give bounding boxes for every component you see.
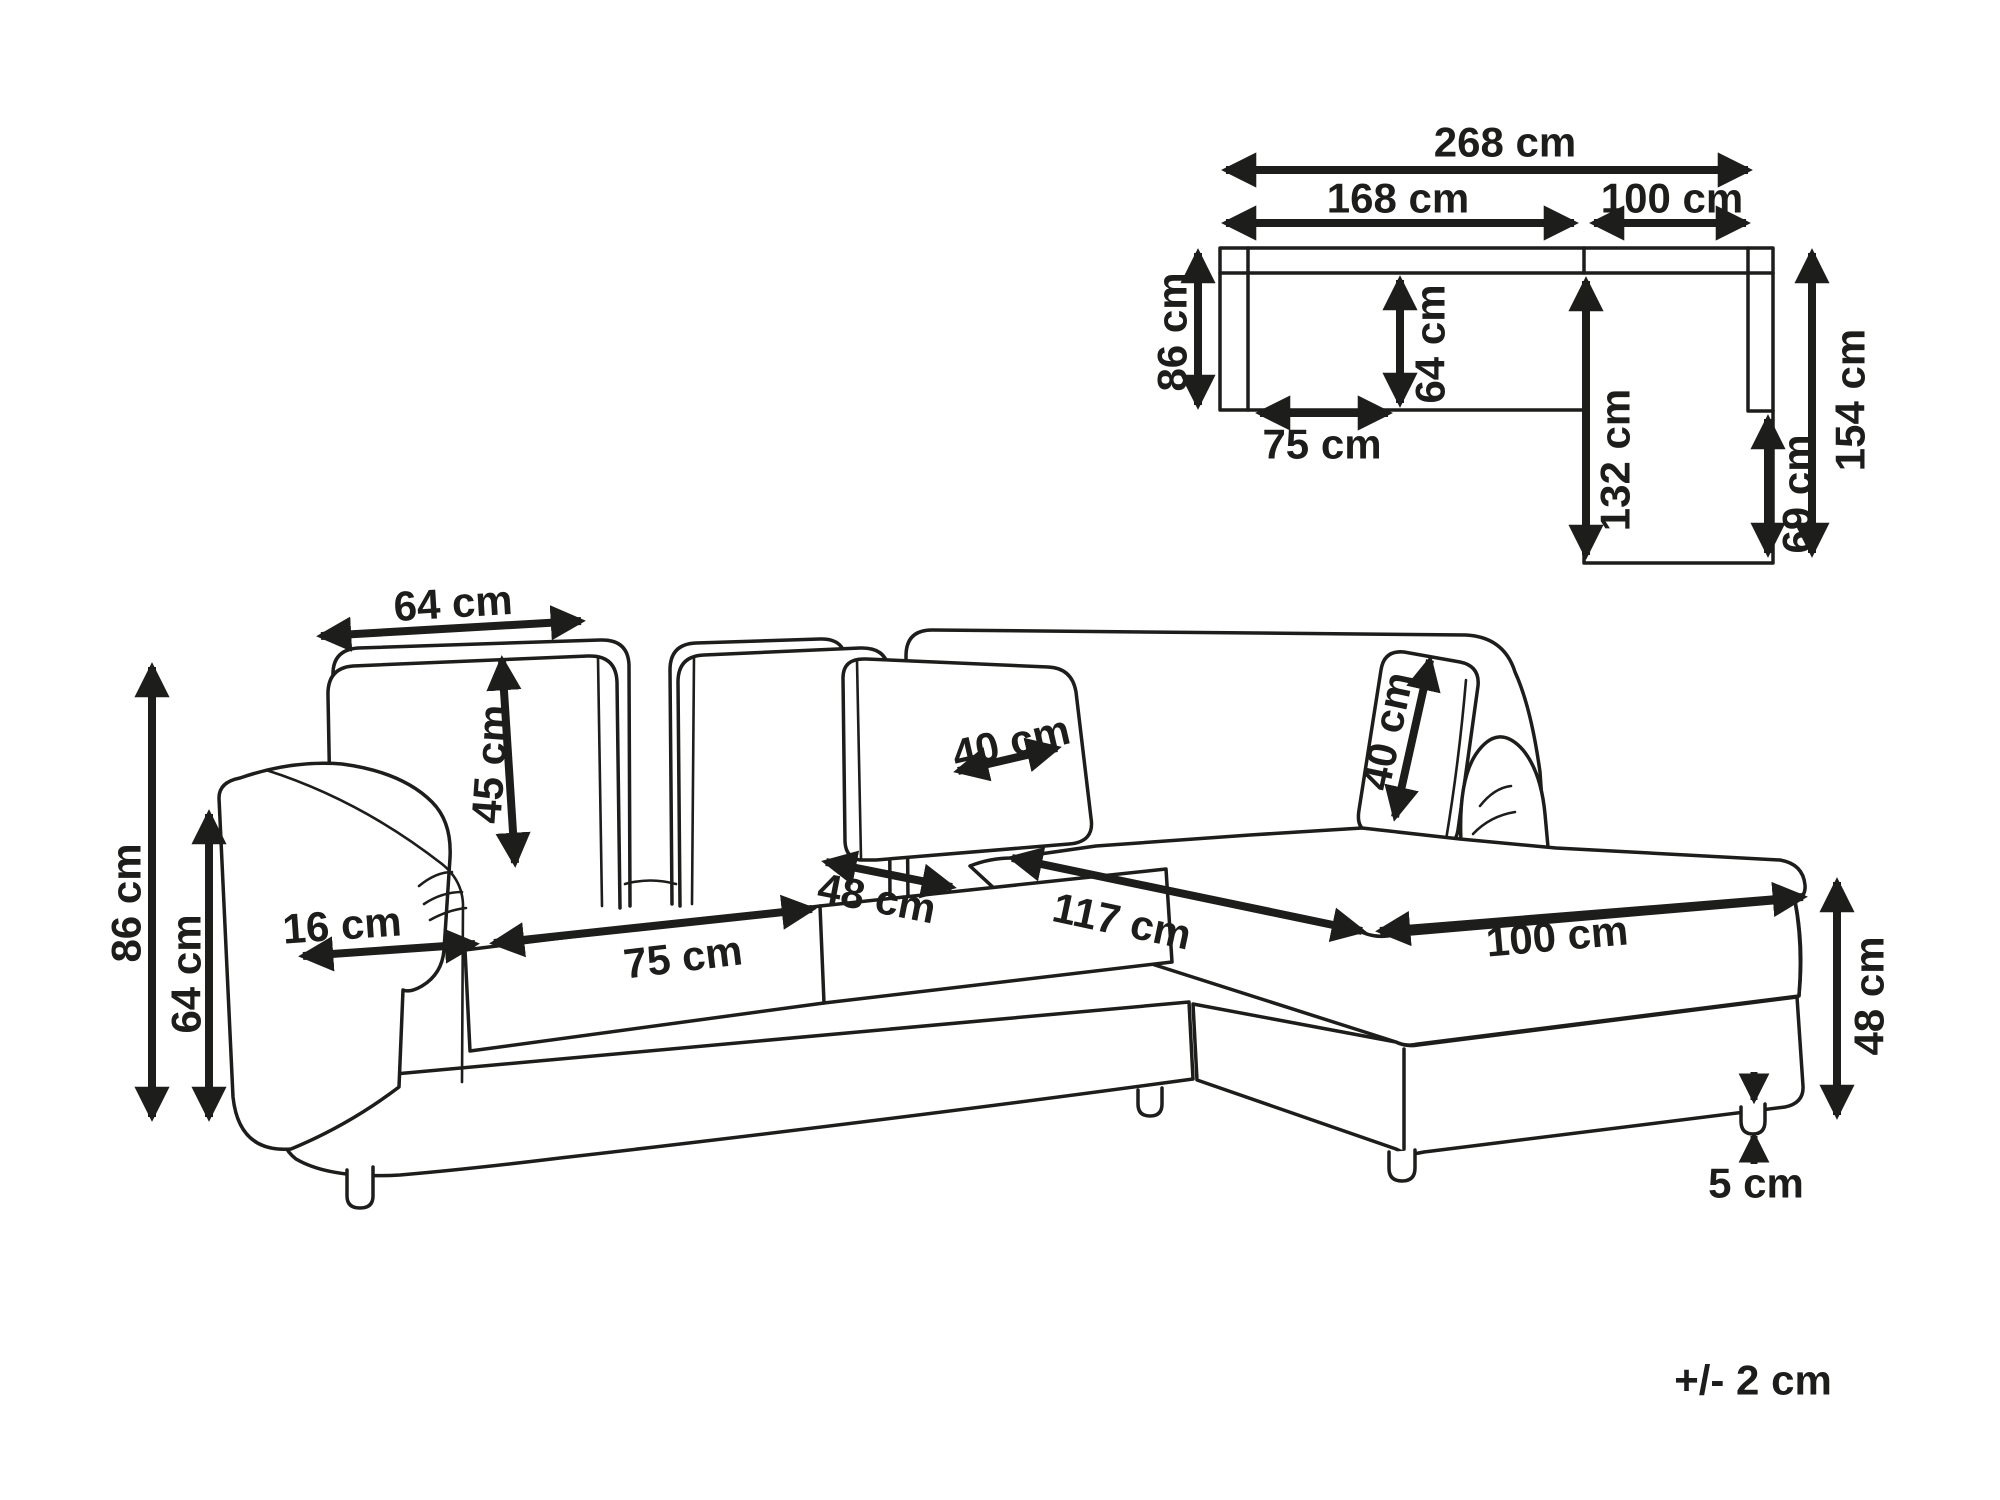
diagram-canvas: 64 cm 45 cm 86 cm 64 cm 16 cm 75 cm 48 c… xyxy=(0,0,2000,1500)
dim-plan-inner-depth: 64 cm xyxy=(1400,280,1454,404)
dim-seat-height-label: 48 cm xyxy=(1846,936,1893,1055)
leg-chaise-right xyxy=(1741,1104,1765,1134)
dim-leg-height-label: 5 cm xyxy=(1708,1160,1804,1207)
dim-plan-depth-label: 86 cm xyxy=(1149,272,1196,391)
dim-armrest-width-label: 16 cm xyxy=(281,897,403,952)
leg-chaise-front xyxy=(1389,1150,1415,1181)
dim-plan-left-width-label: 168 cm xyxy=(1327,175,1469,222)
dim-plan-seat-width-label: 75 cm xyxy=(1262,421,1381,468)
leg-middle xyxy=(1138,1088,1162,1116)
dim-plan-inner-depth-label: 64 cm xyxy=(1407,284,1454,403)
dim-plan-chaise-width-label: 100 cm xyxy=(1601,175,1743,222)
dim-armrest-height-label: 64 cm xyxy=(163,914,210,1033)
dim-plan-seat-width: 75 cm xyxy=(1260,413,1388,468)
leg-front-left xyxy=(347,1167,373,1208)
sofa-dimension-diagram: 64 cm 45 cm 86 cm 64 cm 16 cm 75 cm 48 c… xyxy=(0,0,2000,1500)
dim-plan-chaise-inner-length-label: 132 cm xyxy=(1592,389,1639,531)
dim-total-height-label: 86 cm xyxy=(103,843,150,962)
dim-plan-total-width-label: 268 cm xyxy=(1434,119,1576,166)
dim-back-cushion-width-label: 64 cm xyxy=(392,576,514,630)
dim-plan-depth: 86 cm xyxy=(1149,253,1199,405)
dim-plan-chaise-total-length-label: 154 cm xyxy=(1827,329,1874,471)
dim-back-cushion-height-label: 45 cm xyxy=(462,703,517,825)
dim-plan-chaise-width: 100 cm xyxy=(1594,175,1746,224)
tolerance-note: +/- 2 cm xyxy=(1674,1357,1832,1404)
